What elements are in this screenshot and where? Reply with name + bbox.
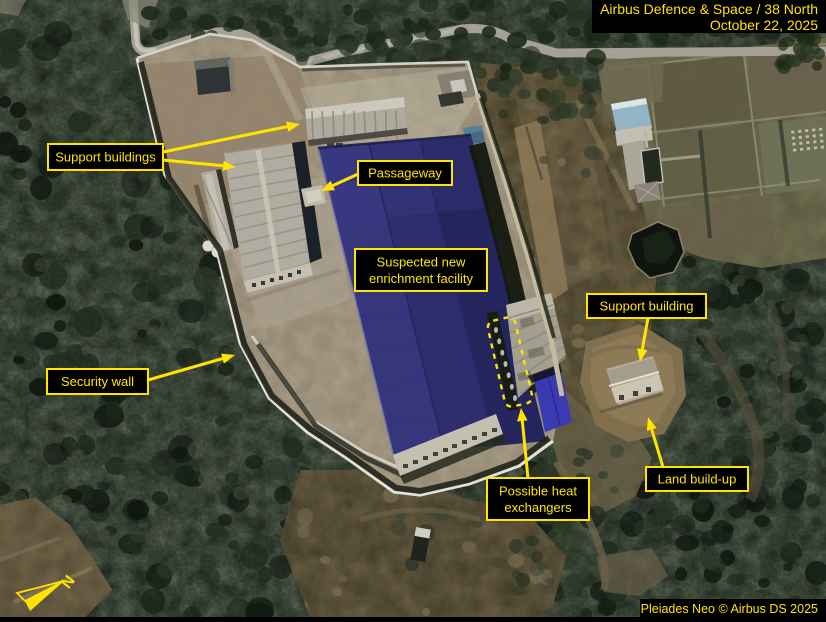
svg-text:enrichment facility: enrichment facility [369,271,474,286]
svg-text:exchangers: exchangers [504,500,572,515]
svg-text:Security wall: Security wall [61,374,134,389]
svg-text:Passageway: Passageway [368,166,442,181]
svg-text:Possible heat: Possible heat [499,483,577,498]
svg-text:Airbus Defence & Space / 38 No: Airbus Defence & Space / 38 North [600,1,818,17]
svg-text:Land build-up: Land build-up [658,472,737,487]
svg-text:Support buildings: Support buildings [55,150,156,165]
svg-text:October 22, 2025: October 22, 2025 [710,17,818,33]
svg-text:Pleiades Neo © Airbus DS 2025: Pleiades Neo © Airbus DS 2025 [641,602,818,616]
svg-text:Support building: Support building [600,299,694,314]
svg-text:Suspected new: Suspected new [377,254,467,269]
